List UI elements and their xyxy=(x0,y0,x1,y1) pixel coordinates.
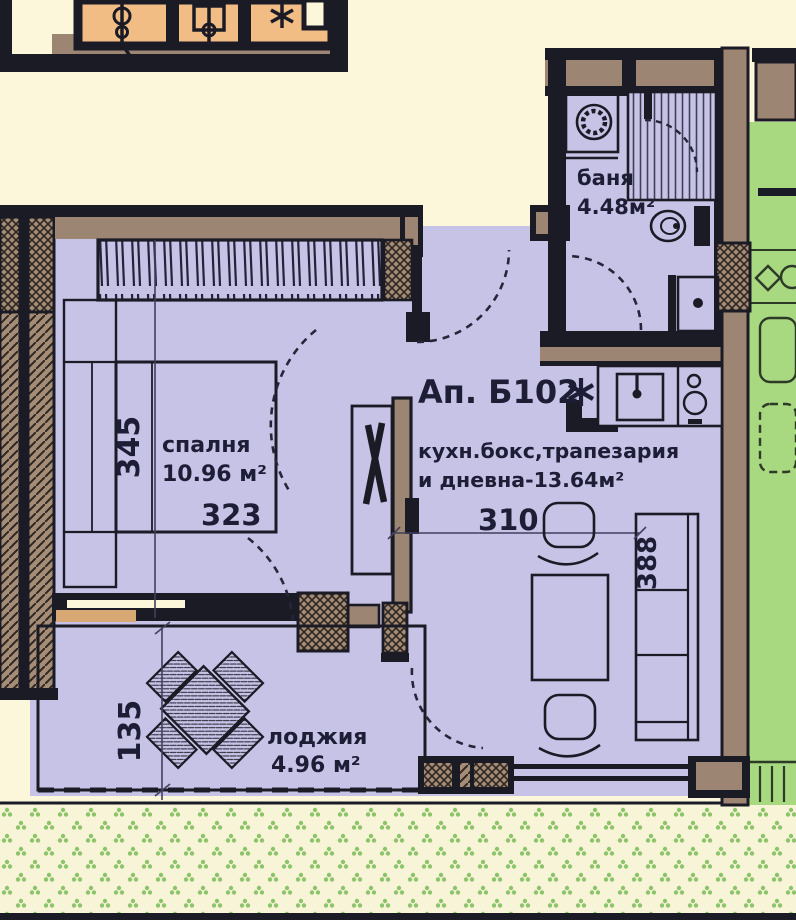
garden-strip xyxy=(0,803,796,920)
entrance-door-leaf xyxy=(412,245,422,315)
shower xyxy=(628,92,716,200)
bedroom-label: спалня xyxy=(162,433,251,458)
floor-plan-canvas: Ап. Б102 кухн.бокс,трапезария и дневна-1… xyxy=(0,0,796,920)
living-room-label: кухн.бокс,трапезария xyxy=(418,439,679,463)
loggia-label: лоджия xyxy=(267,725,367,750)
loggia-area: 4.96 м² xyxy=(271,753,361,778)
dim-323: 323 xyxy=(201,498,262,532)
adjacent-unit-right xyxy=(748,48,796,805)
bathroom-label: баня xyxy=(577,166,634,190)
dim-345: 345 xyxy=(112,416,147,479)
dim-310: 310 xyxy=(478,503,539,537)
bathroom-door-leaf xyxy=(565,333,643,344)
dim-388: 388 xyxy=(633,536,663,590)
bathroom-area: 4.48м² xyxy=(577,195,655,219)
floor-plan-page: Ап. Б102 кухн.бокс,трапезария и дневна-1… xyxy=(0,0,796,920)
wardrobe xyxy=(98,240,382,300)
dim-135: 135 xyxy=(113,700,148,763)
bedroom-area: 10.96 м² xyxy=(162,462,267,487)
apartment-label: Ап. Б102 xyxy=(418,373,579,411)
living-room-area: и дневна-13.64м² xyxy=(418,468,624,492)
